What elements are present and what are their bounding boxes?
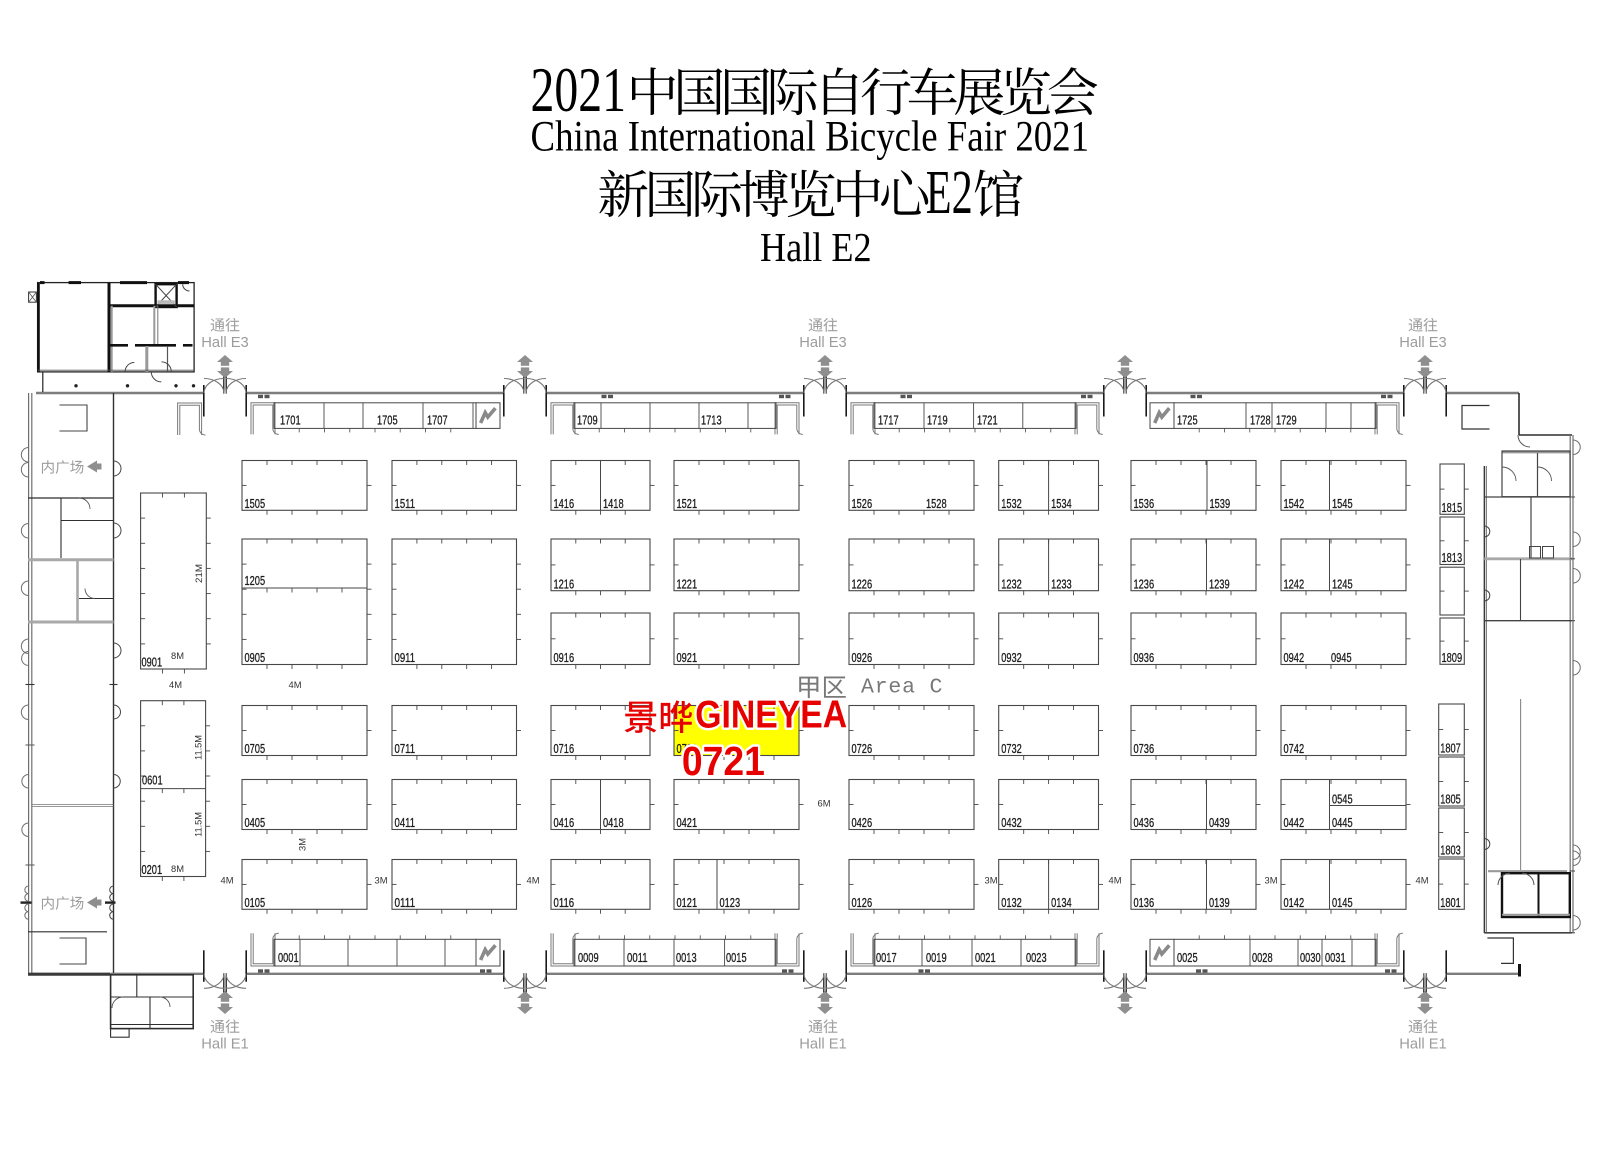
svg-text:1705: 1705 <box>377 413 398 427</box>
svg-text:1542: 1542 <box>1284 497 1305 511</box>
svg-text:4M: 4M <box>1416 876 1429 887</box>
svg-text:8M: 8M <box>171 864 184 875</box>
svg-text:0019: 0019 <box>926 951 947 965</box>
svg-text:1725: 1725 <box>1177 413 1198 427</box>
svg-text:0136: 0136 <box>1134 896 1155 910</box>
svg-text:3M: 3M <box>985 876 998 887</box>
svg-text:0942: 0942 <box>1284 651 1305 665</box>
svg-text:0945: 0945 <box>1331 651 1352 665</box>
svg-text:1807: 1807 <box>1440 742 1461 756</box>
svg-text:Hall E1: Hall E1 <box>1399 1036 1447 1053</box>
svg-text:0405: 0405 <box>245 816 266 830</box>
svg-text:1539: 1539 <box>1210 497 1231 511</box>
svg-text:3M: 3M <box>375 876 388 887</box>
svg-text:1813: 1813 <box>1442 551 1463 565</box>
svg-text:4M: 4M <box>1109 876 1122 887</box>
svg-text:0105: 0105 <box>245 896 266 910</box>
svg-text:1534: 1534 <box>1051 497 1072 511</box>
svg-text:0442: 0442 <box>1284 816 1305 830</box>
svg-text:1221: 1221 <box>677 577 698 591</box>
svg-text:0134: 0134 <box>1051 896 1072 910</box>
svg-text:1536: 1536 <box>1134 497 1155 511</box>
svg-text:11.5M: 11.5M <box>194 812 204 837</box>
svg-text:GINEYEA: GINEYEA <box>695 694 847 737</box>
svg-text:0123: 0123 <box>720 896 741 910</box>
svg-text:0726: 0726 <box>852 742 873 756</box>
svg-text:1815: 1815 <box>1442 501 1463 515</box>
svg-text:Hall E3: Hall E3 <box>1399 334 1447 351</box>
svg-text:1728: 1728 <box>1250 413 1271 427</box>
svg-text:1709: 1709 <box>577 413 598 427</box>
svg-text:21M: 21M <box>194 564 205 583</box>
svg-text:0426: 0426 <box>852 816 873 830</box>
svg-text:0732: 0732 <box>1001 742 1022 756</box>
svg-text:Hall E3: Hall E3 <box>201 334 249 351</box>
svg-text:4M: 4M <box>289 680 302 691</box>
svg-text:0936: 0936 <box>1134 651 1155 665</box>
svg-text:0736: 0736 <box>1134 742 1155 756</box>
svg-text:1239: 1239 <box>1209 577 1230 591</box>
svg-text:0132: 0132 <box>1001 896 1022 910</box>
svg-text:0705: 0705 <box>245 742 266 756</box>
svg-text:1729: 1729 <box>1276 413 1297 427</box>
svg-text:3M: 3M <box>298 838 309 851</box>
svg-text:1216: 1216 <box>554 577 575 591</box>
svg-text:0601: 0601 <box>142 774 163 788</box>
svg-text:1245: 1245 <box>1332 577 1353 591</box>
svg-text:0028: 0028 <box>1252 951 1273 965</box>
svg-text:Hall E3: Hall E3 <box>799 334 847 351</box>
svg-text:1242: 1242 <box>1284 577 1305 591</box>
svg-text:1545: 1545 <box>1332 497 1353 511</box>
svg-text:1418: 1418 <box>603 497 624 511</box>
svg-text:1707: 1707 <box>427 413 448 427</box>
svg-text:1803: 1803 <box>1440 844 1461 858</box>
svg-text:0015: 0015 <box>726 951 747 965</box>
svg-text:0013: 0013 <box>676 951 697 965</box>
svg-text:0201: 0201 <box>142 863 163 877</box>
svg-text:0116: 0116 <box>554 896 575 910</box>
svg-text:0905: 0905 <box>245 651 266 665</box>
svg-text:3M: 3M <box>1265 876 1278 887</box>
svg-text:Hall E1: Hall E1 <box>799 1036 847 1053</box>
svg-text:1205: 1205 <box>245 574 266 588</box>
svg-text:1801: 1801 <box>1440 896 1461 910</box>
svg-text:Area C: Area C <box>861 676 943 700</box>
svg-text:1416: 1416 <box>554 497 575 511</box>
svg-text:0921: 0921 <box>677 651 698 665</box>
svg-text:0711: 0711 <box>395 742 416 756</box>
svg-text:0139: 0139 <box>1209 896 1230 910</box>
svg-text:0111: 0111 <box>395 896 416 910</box>
svg-text:0001: 0001 <box>278 951 299 965</box>
svg-text:4M: 4M <box>527 876 540 887</box>
svg-text:1511: 1511 <box>395 497 416 511</box>
svg-text:Hall E1: Hall E1 <box>201 1036 249 1053</box>
svg-text:0030: 0030 <box>1300 951 1321 965</box>
svg-text:0031: 0031 <box>1325 951 1346 965</box>
svg-text:4M: 4M <box>221 876 234 887</box>
svg-text:0421: 0421 <box>677 816 698 830</box>
svg-text:0916: 0916 <box>554 651 575 665</box>
svg-text:11.5M: 11.5M <box>194 735 204 760</box>
svg-text:0721: 0721 <box>682 738 765 784</box>
svg-text:Hall E2: Hall E2 <box>760 224 872 270</box>
svg-text:0145: 0145 <box>1332 896 1353 910</box>
svg-text:0011: 0011 <box>627 951 648 965</box>
svg-text:1521: 1521 <box>677 497 698 511</box>
svg-text:0009: 0009 <box>578 951 599 965</box>
svg-text:8M: 8M <box>171 651 184 662</box>
svg-text:0025: 0025 <box>1177 951 1198 965</box>
svg-text:0023: 0023 <box>1026 951 1047 965</box>
svg-text:1532: 1532 <box>1001 497 1022 511</box>
svg-text:1719: 1719 <box>927 413 948 427</box>
svg-text:E2: E2 <box>926 159 973 227</box>
svg-text:0126: 0126 <box>852 896 873 910</box>
svg-text:1809: 1809 <box>1442 651 1463 665</box>
svg-text:0932: 0932 <box>1001 651 1022 665</box>
svg-text:0901: 0901 <box>142 655 163 669</box>
svg-text:0436: 0436 <box>1134 816 1155 830</box>
svg-text:0445: 0445 <box>1332 816 1353 830</box>
svg-text:0017: 0017 <box>876 951 897 965</box>
svg-text:0142: 0142 <box>1284 896 1305 910</box>
svg-text:1713: 1713 <box>701 413 722 427</box>
svg-text:0418: 0418 <box>603 816 624 830</box>
svg-text:0416: 0416 <box>554 816 575 830</box>
svg-text:1526: 1526 <box>852 497 873 511</box>
svg-text:1233: 1233 <box>1051 577 1072 591</box>
svg-text:1226: 1226 <box>852 577 873 591</box>
svg-text:0021: 0021 <box>975 951 996 965</box>
svg-text:1528: 1528 <box>926 497 947 511</box>
svg-text:1505: 1505 <box>245 497 266 511</box>
svg-text:0545: 0545 <box>1332 793 1353 807</box>
svg-text:0926: 0926 <box>852 651 873 665</box>
svg-text:1717: 1717 <box>878 413 899 427</box>
svg-text:0742: 0742 <box>1284 742 1305 756</box>
svg-text:4M: 4M <box>169 680 182 691</box>
svg-text:0121: 0121 <box>677 896 698 910</box>
svg-text:1721: 1721 <box>977 413 998 427</box>
svg-text:1236: 1236 <box>1134 577 1155 591</box>
svg-text:China International Bicycle Fa: China International Bicycle Fair 2021 <box>531 114 1090 161</box>
svg-text:0432: 0432 <box>1001 816 1022 830</box>
svg-text:1701: 1701 <box>280 413 301 427</box>
svg-text:0411: 0411 <box>395 816 416 830</box>
svg-text:0716: 0716 <box>554 742 575 756</box>
svg-text:0911: 0911 <box>395 651 416 665</box>
svg-text:6M: 6M <box>818 799 831 810</box>
svg-text:1805: 1805 <box>1440 793 1461 807</box>
svg-text:0439: 0439 <box>1209 816 1230 830</box>
svg-text:1232: 1232 <box>1001 577 1022 591</box>
